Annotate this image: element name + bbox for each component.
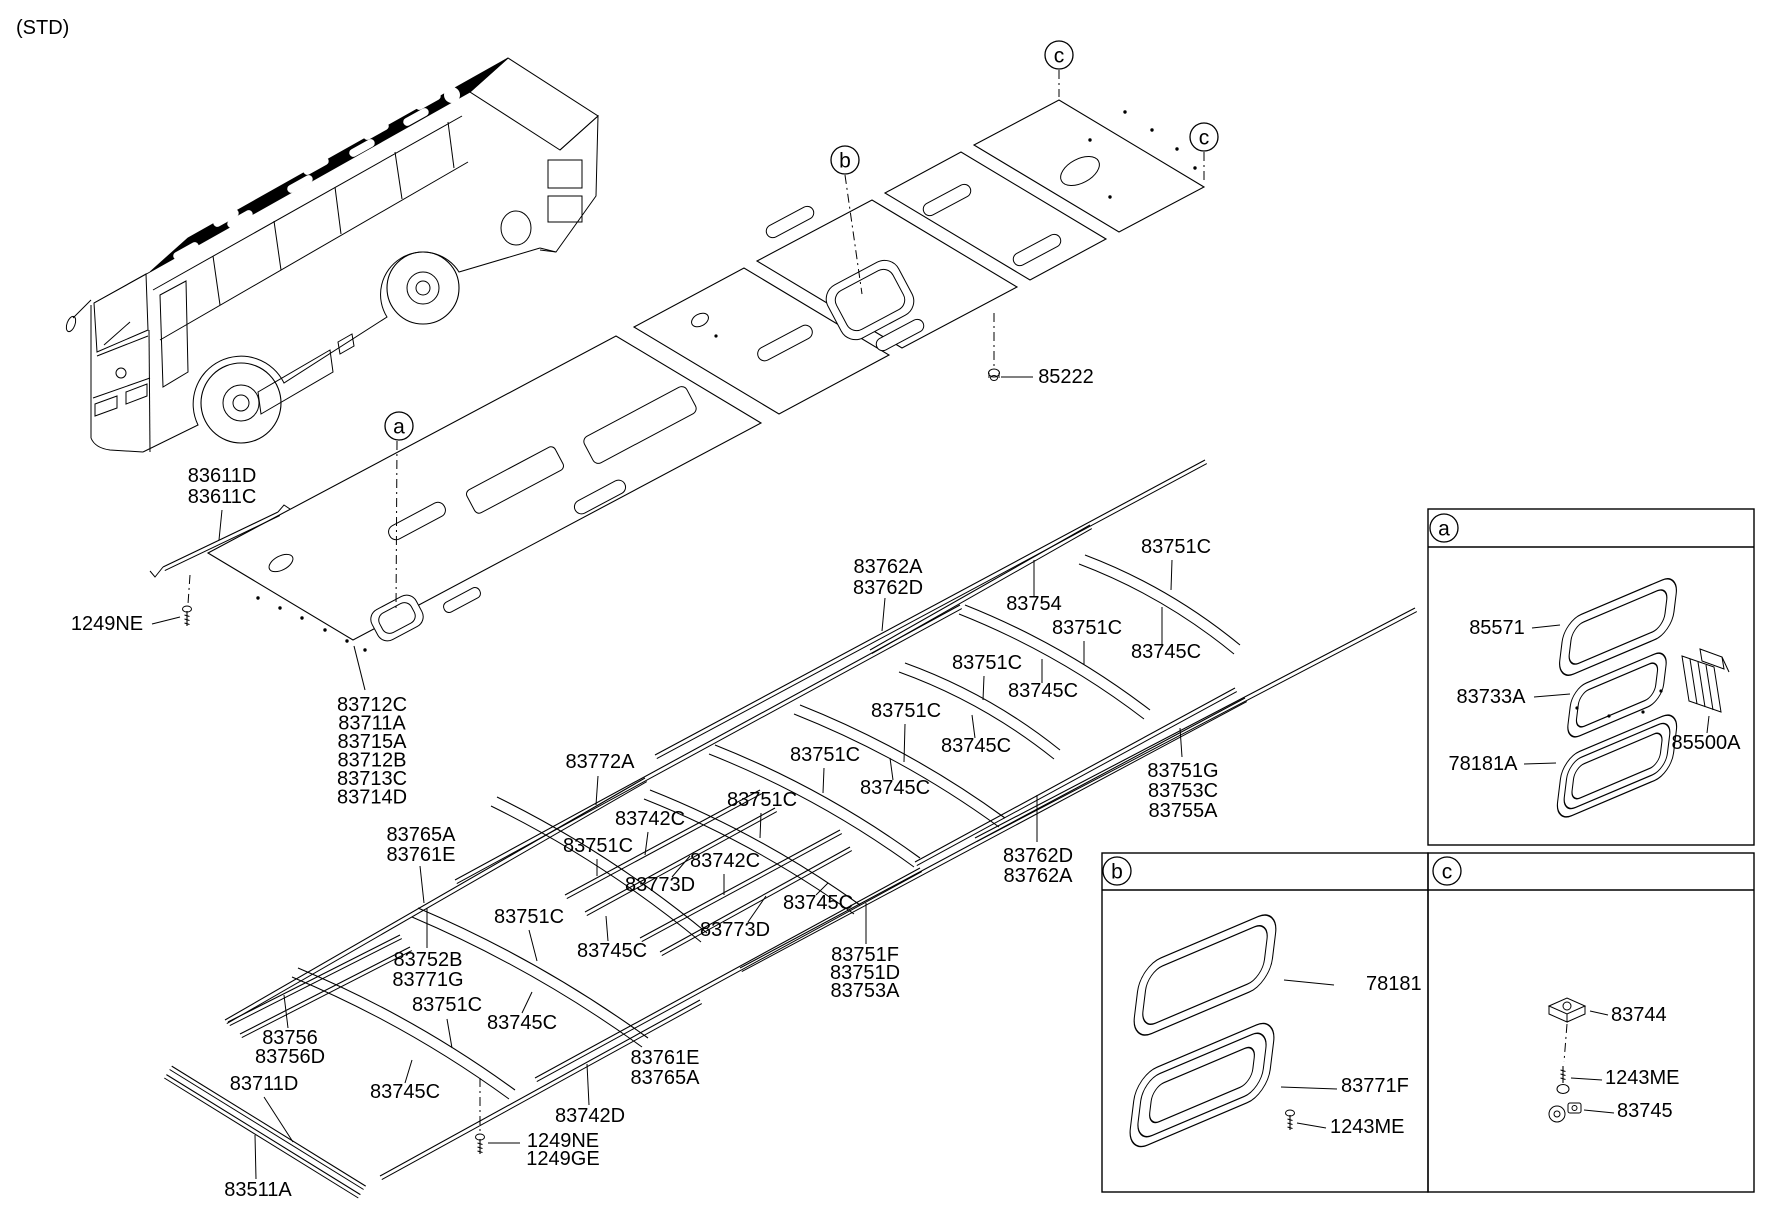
bus-wheels xyxy=(201,252,459,443)
part-label-83751C-c6: 83751C xyxy=(727,789,797,811)
part-label-83745-c: 83745 xyxy=(1617,1100,1673,1122)
part-label-1243ME-b: 1243ME xyxy=(1330,1116,1405,1138)
part-label-1243ME-c: 1243ME xyxy=(1605,1067,1680,1089)
part-label-83744: 83744 xyxy=(1611,1004,1667,1026)
part-label-83756-group: 8375683756D xyxy=(255,1027,325,1068)
bus-rear xyxy=(470,58,598,252)
part-label-1249NE-left: 1249NE xyxy=(71,613,143,635)
part-label-83742C-2: 83742C xyxy=(690,850,760,872)
part-label-83773D-2: 83773D xyxy=(700,919,770,941)
callout-letter: c xyxy=(1442,861,1453,884)
part-label-83711D: 83711D xyxy=(230,1073,299,1095)
part-label-83772A: 83772A xyxy=(566,751,636,773)
part-label-83751C-bowX: 83751C xyxy=(412,994,482,1016)
part-label-83751C-c5: 83751C xyxy=(790,744,860,766)
part-label-83751C-c4: 83751C xyxy=(871,700,941,722)
part-label-83745C-c2: 83745C xyxy=(1131,641,1201,663)
ring-83771F xyxy=(1127,1016,1276,1153)
clip-83744 xyxy=(1549,998,1585,1022)
callout-c-main-2: c xyxy=(1190,123,1218,151)
callout-letter: a xyxy=(393,416,405,439)
part-label-83511A: 83511A xyxy=(224,1179,292,1201)
part-label-83751F-group: 83751F83751D83753A xyxy=(830,944,900,1002)
part-label-83751G-group: 83751G83753C83755A xyxy=(1147,760,1218,822)
callout-letter: b xyxy=(1111,861,1123,884)
ring-78181A xyxy=(1555,709,1679,822)
part-label-78181-b: 78181 xyxy=(1366,973,1422,995)
part-label-83751C-c3: 83751C xyxy=(952,652,1022,674)
part-label-83751C-c1: 83751C xyxy=(1141,536,1211,558)
parts-diagram-page: abccabc (STD)83611D83611C1249NE83712C837… xyxy=(0,0,1772,1211)
part-label-83751C-c7: 83751C xyxy=(563,835,633,857)
part-label-83745C-c7: 83745C xyxy=(577,940,647,962)
part-label-83745C-c5: 83745C xyxy=(860,777,930,799)
callout-b-main: b xyxy=(831,146,859,174)
part-label-83762-upper: 83762A83762D xyxy=(853,556,923,599)
part-label-83751C-c2: 83751C xyxy=(1052,617,1122,639)
part-label-83752B-group: 83752B83771G xyxy=(392,949,463,991)
inset-b-letter: b xyxy=(1103,857,1131,885)
callout-a-main: a xyxy=(385,412,413,440)
part-label-83745C-c4: 83745C xyxy=(941,735,1011,757)
screw-1243ME-c xyxy=(1557,1066,1569,1094)
part-label-83754: 83754 xyxy=(1006,593,1062,615)
part-label-83751C-bowY: 83751C xyxy=(494,906,564,928)
callout-letter: c xyxy=(1199,127,1210,150)
ring-78181 xyxy=(1131,908,1278,1042)
bolt-1249-bottom xyxy=(476,1134,485,1154)
exploded-parts-diagram: abccabc (STD)83611D83611C1249NE83712C837… xyxy=(0,0,1772,1211)
strips-83756 xyxy=(228,935,412,1038)
part-label-1249-bottom: 1249NE1249GE xyxy=(526,1130,599,1170)
part-label-83742C-1: 83742C xyxy=(615,808,685,830)
part-label-83762-right: 83762D83762A xyxy=(1003,845,1073,887)
washer-nut-83745 xyxy=(1549,1103,1581,1122)
part-label-83742D: 83742D xyxy=(555,1105,625,1127)
callout-letter: b xyxy=(839,150,851,173)
part-label-83745C-bowY: 83745C xyxy=(487,1012,557,1034)
part-label-85222: 85222 xyxy=(1038,366,1094,388)
inset-panel-b xyxy=(1102,853,1428,1192)
inset-a-letter: a xyxy=(1430,514,1458,542)
nut-85222 xyxy=(989,369,1000,381)
roof-panel-1 xyxy=(208,336,761,652)
part-label-std-tag: (STD) xyxy=(16,17,69,39)
callout-letter: c xyxy=(1054,45,1065,68)
inset-panel-a xyxy=(1428,509,1754,845)
part-label-78181A: 78181A xyxy=(1449,753,1519,775)
bolt-1243ME-b xyxy=(1286,1110,1295,1130)
part-label-83733A: 83733A xyxy=(1457,686,1527,708)
part-label-83745C-c3: 83745C xyxy=(1008,680,1078,702)
part-label-83773D-1: 83773D xyxy=(625,874,695,896)
part-label-83765A-upper: 83765A83761E xyxy=(387,824,457,866)
inset-panel-c xyxy=(1428,853,1754,1192)
part-label-83611: 83611D83611C xyxy=(188,465,257,508)
part-label-85500A: 85500A xyxy=(1672,732,1742,754)
callout-letter: a xyxy=(1438,518,1450,541)
part-label-85571: 85571 xyxy=(1469,617,1525,639)
inset-c-letter: c xyxy=(1433,857,1461,885)
bolt-1249NE-left xyxy=(183,606,192,626)
part-label-83745C-bowX: 83745C xyxy=(370,1081,440,1103)
callout-c-main-1: c xyxy=(1045,41,1073,69)
part-label-83712-group: 83712C83711A83715A83712B83713C83714D xyxy=(337,694,407,809)
ring-85571 xyxy=(1557,573,1678,681)
part-label-83761E-bottom: 83761E83765A xyxy=(631,1047,701,1089)
bus-front xyxy=(65,272,150,452)
part-label-83771F: 83771F xyxy=(1341,1075,1409,1097)
part-label-83745C-c6: 83745C xyxy=(783,892,853,914)
vent-85500A xyxy=(1682,649,1729,712)
